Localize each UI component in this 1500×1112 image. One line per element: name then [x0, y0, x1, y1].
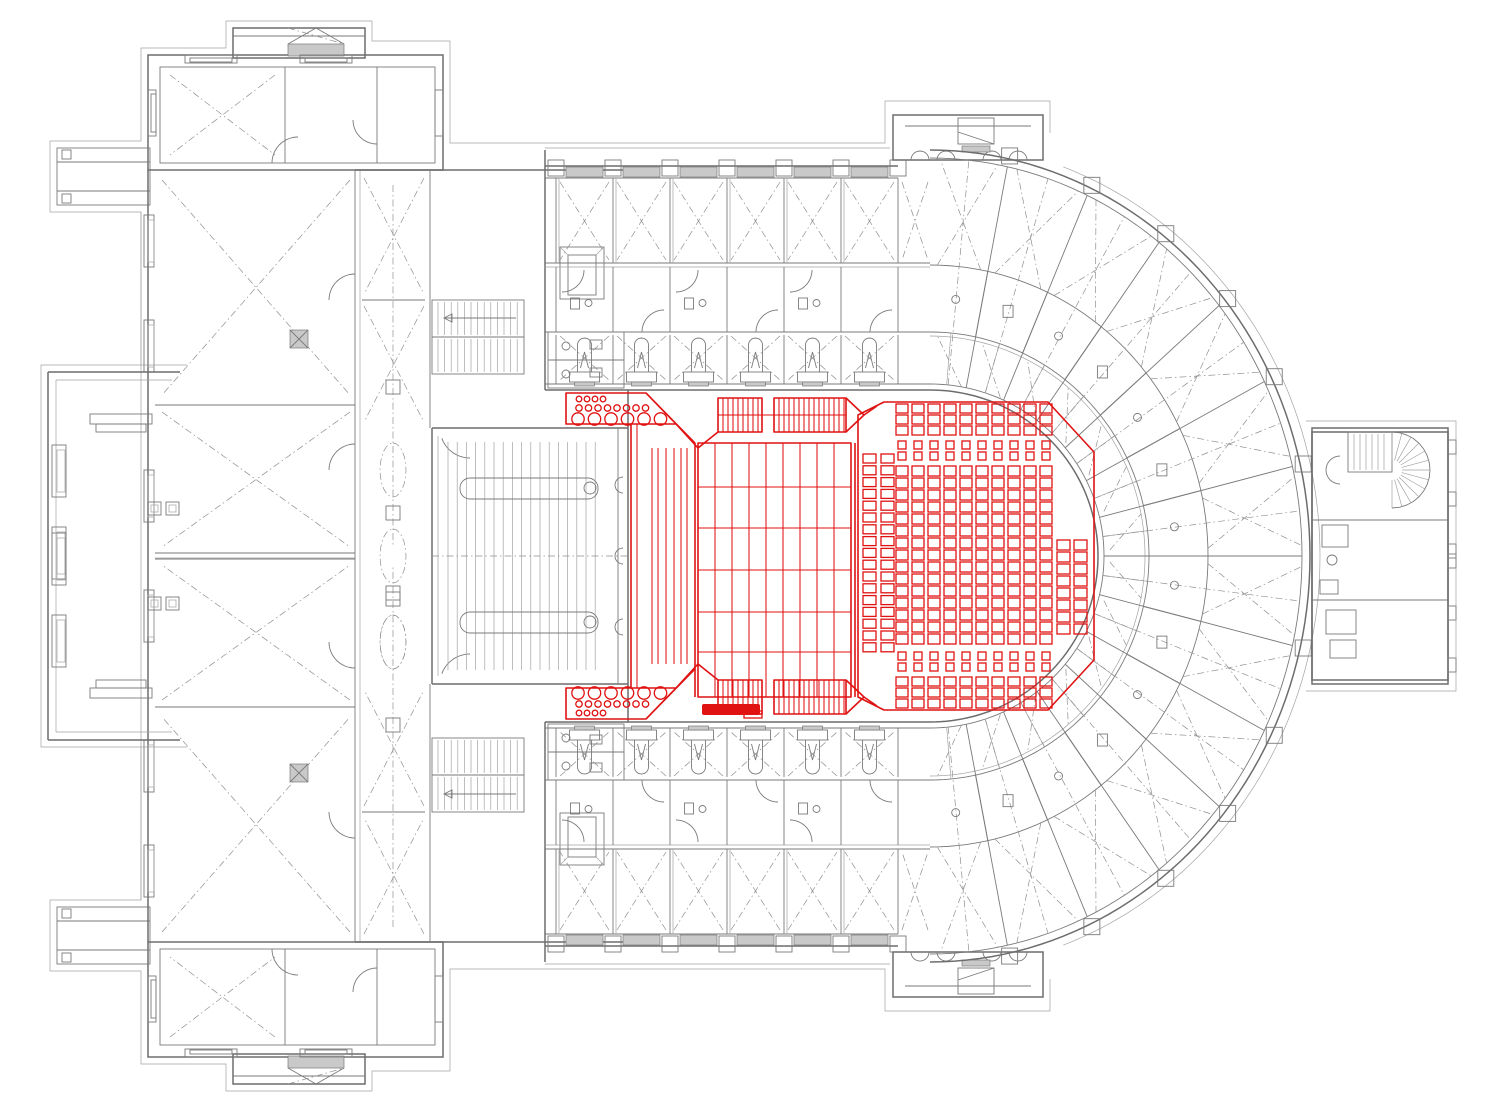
wing-left	[141, 170, 406, 556]
floor-plan-drawing	[0, 0, 1500, 1112]
highlight-top-half	[566, 393, 1094, 556]
east-annex-interior	[1104, 432, 1448, 658]
corridor-band-top	[545, 148, 930, 390]
mirrored-building-half	[48, 28, 1456, 680]
rear-entrance-hall	[48, 372, 180, 579]
stage-floor	[155, 442, 628, 670]
center-content	[155, 424, 1448, 718]
stage-platform-grid	[631, 424, 855, 718]
entrance-pavilion-top	[893, 115, 1043, 160]
horseshoe-foyer	[930, 148, 1311, 556]
floor-plan-canvas	[0, 0, 1500, 1112]
auditorium-seating	[863, 454, 1087, 652]
highlight-center	[631, 424, 1087, 718]
mirrored-building-half-bottom	[48, 432, 1456, 1084]
stage-house-upper	[355, 150, 630, 556]
wing-top-left	[57, 28, 443, 205]
